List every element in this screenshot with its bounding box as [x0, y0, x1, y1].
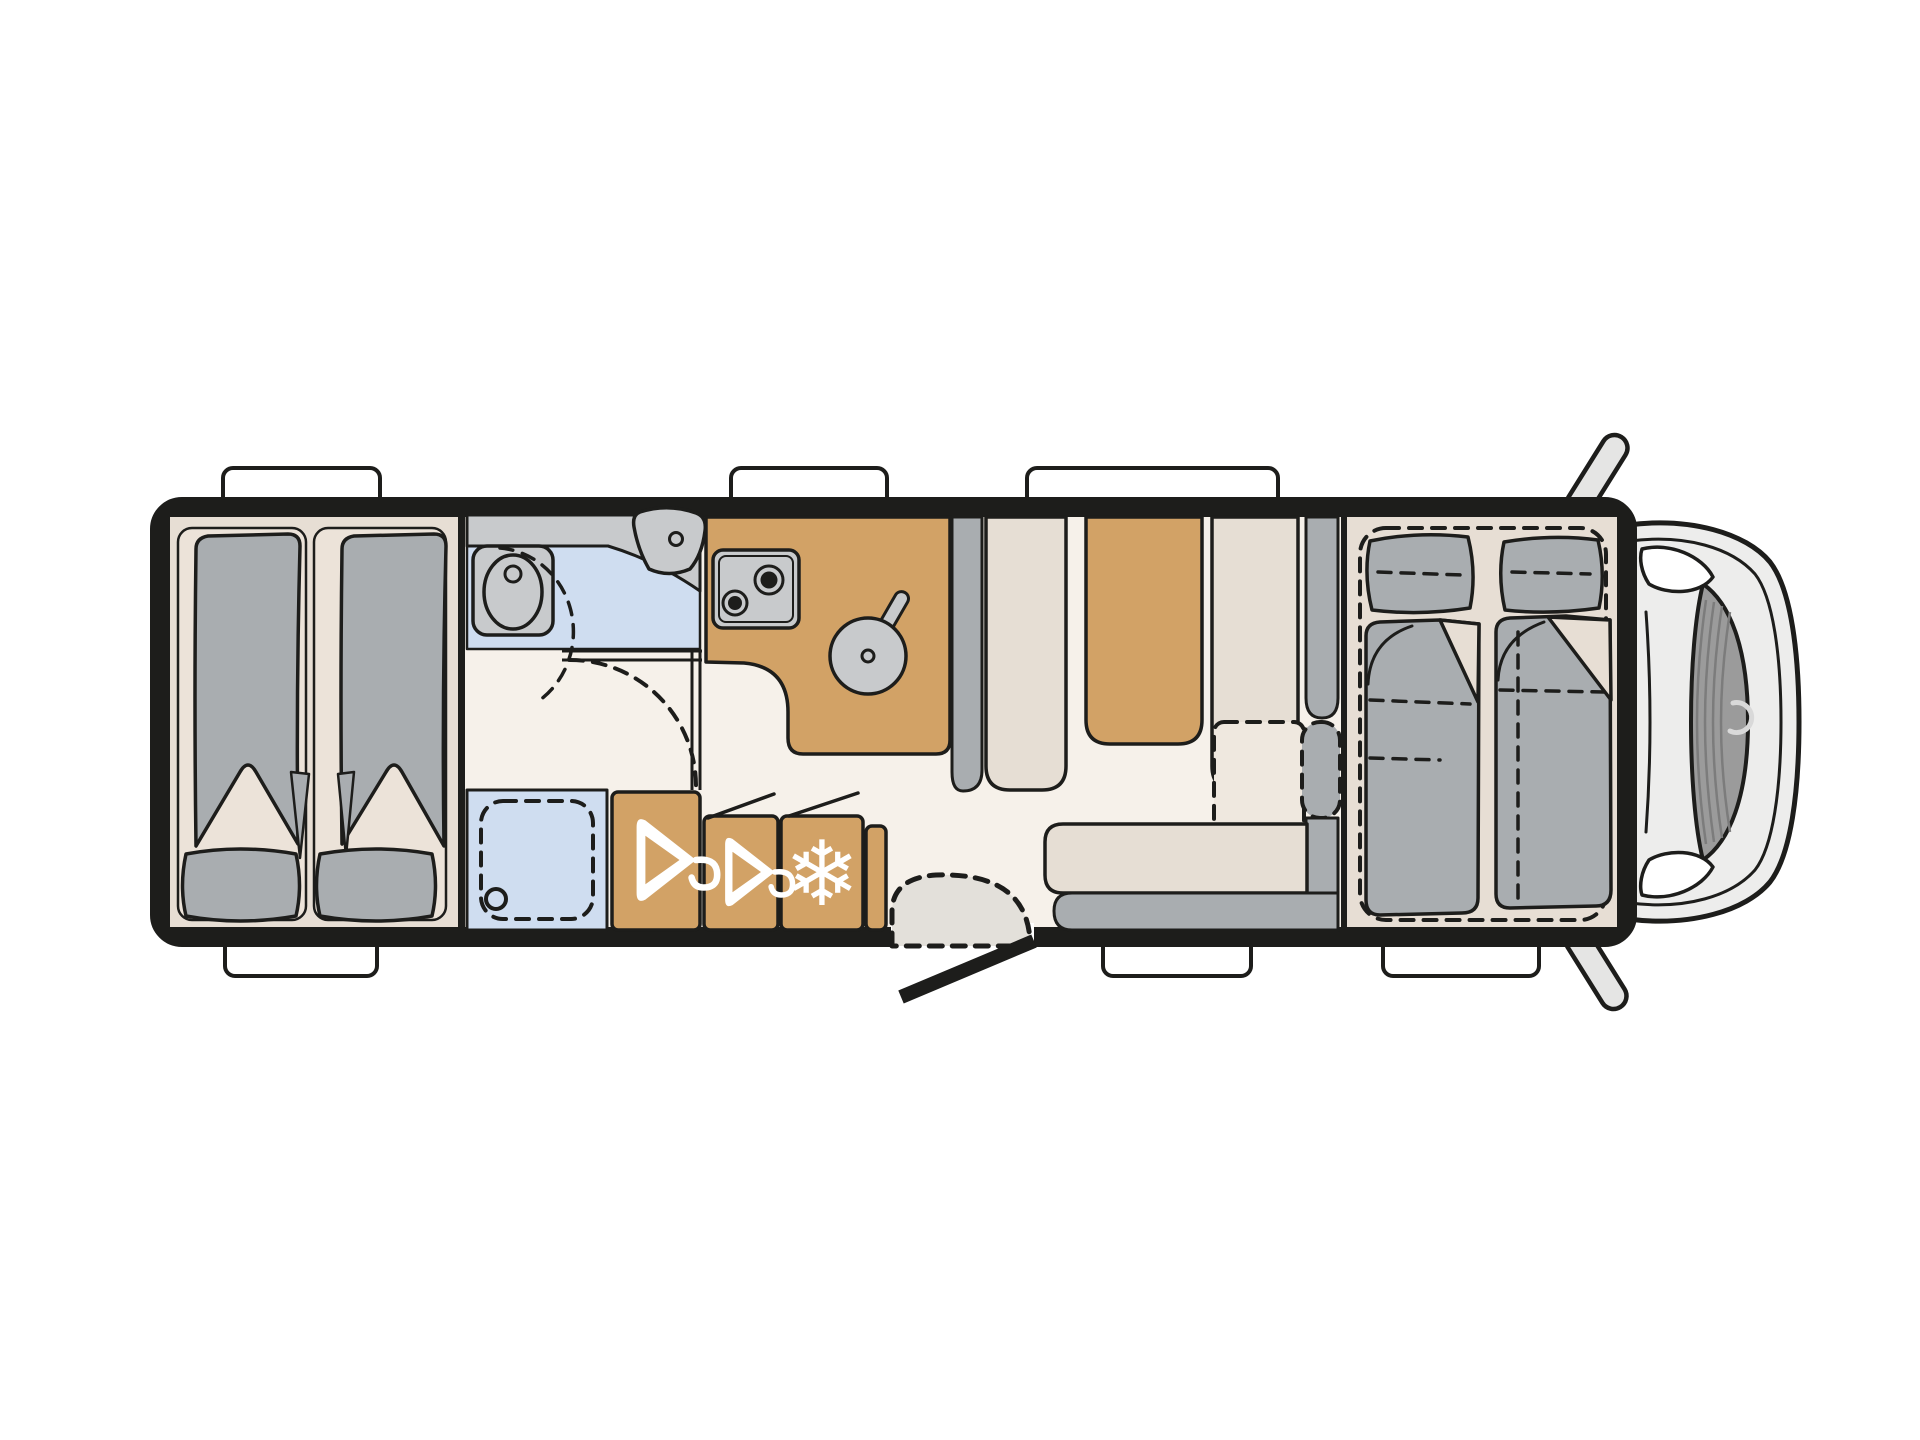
sofa [1045, 818, 1338, 930]
rear-bed-right-pillow [317, 849, 436, 921]
sofa-backrest [1045, 824, 1307, 893]
shower [467, 790, 607, 930]
front-bed-left-duvet-dash2 [1370, 758, 1440, 760]
stove-burner-small-center [728, 596, 742, 610]
toilet-flush-icon [505, 566, 521, 582]
optional-seat-dashed [1214, 722, 1304, 830]
dinette-seat-left [986, 517, 1066, 790]
kitchen-sink-drain-icon [862, 650, 874, 662]
stove-burner-large-center [761, 572, 778, 589]
dinette-backrest-right [1306, 517, 1338, 718]
rear-bed-left-pillow [183, 849, 300, 921]
optional-backrest-dashed [1302, 722, 1340, 818]
dinette-table [1086, 517, 1202, 744]
sofa-seat-front [1054, 893, 1338, 930]
dinette-partition-backrest [952, 517, 982, 791]
floorplan-canvas: ❄ [0, 0, 1920, 1440]
cabinet-sliver [866, 826, 886, 930]
sink-drain-icon [670, 533, 683, 546]
shower-area [467, 790, 607, 930]
stove [713, 550, 799, 628]
front-partition-wall [1341, 517, 1347, 927]
rear-partition-wall [458, 517, 465, 927]
snowflake-icon: ❄ [784, 822, 859, 927]
motorhome-floorplan: ❄ [0, 0, 1920, 1440]
